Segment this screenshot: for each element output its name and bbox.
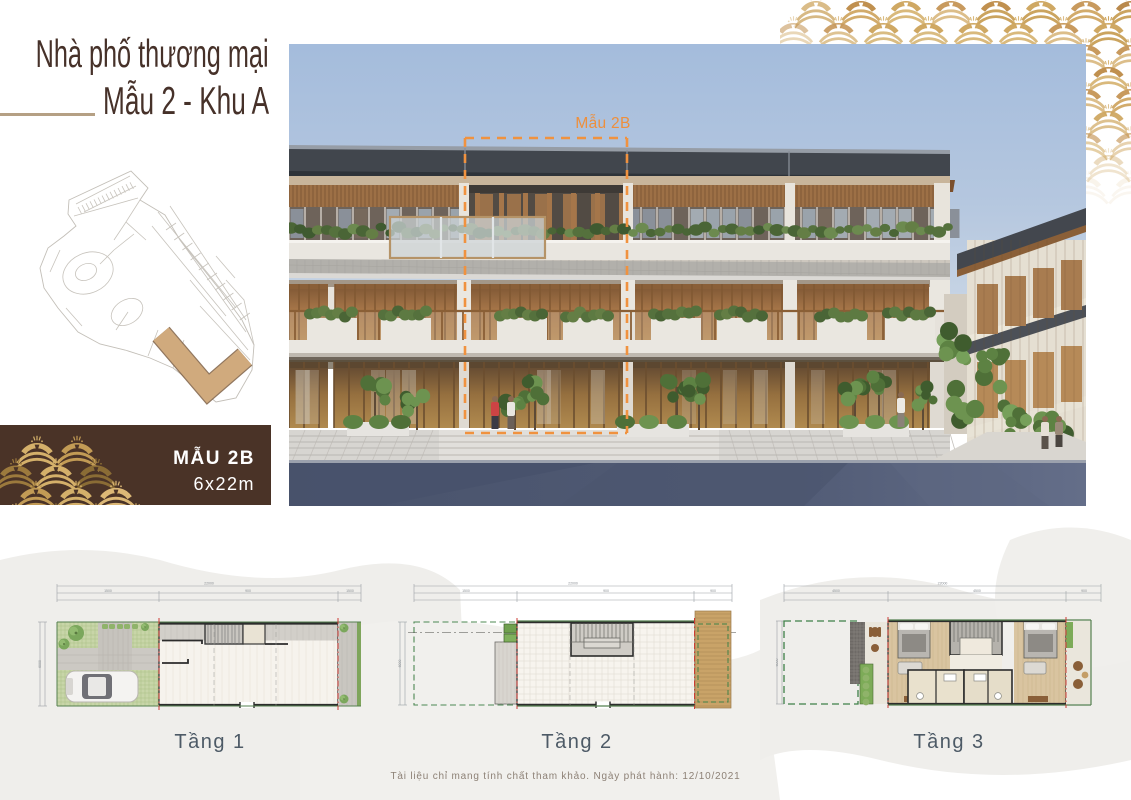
svg-text:Mẫu 2B: Mẫu 2B	[575, 115, 630, 132]
svg-text:900: 900	[603, 589, 609, 593]
svg-text:4500: 4500	[832, 589, 840, 593]
svg-text:900: 900	[245, 589, 251, 593]
svg-text:1500: 1500	[346, 589, 354, 593]
svg-text:6000: 6000	[398, 660, 402, 668]
svg-text:22000: 22000	[938, 582, 948, 586]
svg-text:1500: 1500	[462, 589, 470, 593]
svg-text:22000: 22000	[568, 582, 578, 586]
svg-text:6000: 6000	[776, 659, 779, 667]
svg-text:900: 900	[710, 589, 716, 593]
svg-text:1500: 1500	[104, 589, 112, 593]
svg-text:22000: 22000	[204, 582, 214, 586]
svg-text:4500: 4500	[973, 589, 981, 593]
svg-text:900: 900	[1081, 589, 1087, 593]
svg-text:6000: 6000	[38, 660, 42, 668]
